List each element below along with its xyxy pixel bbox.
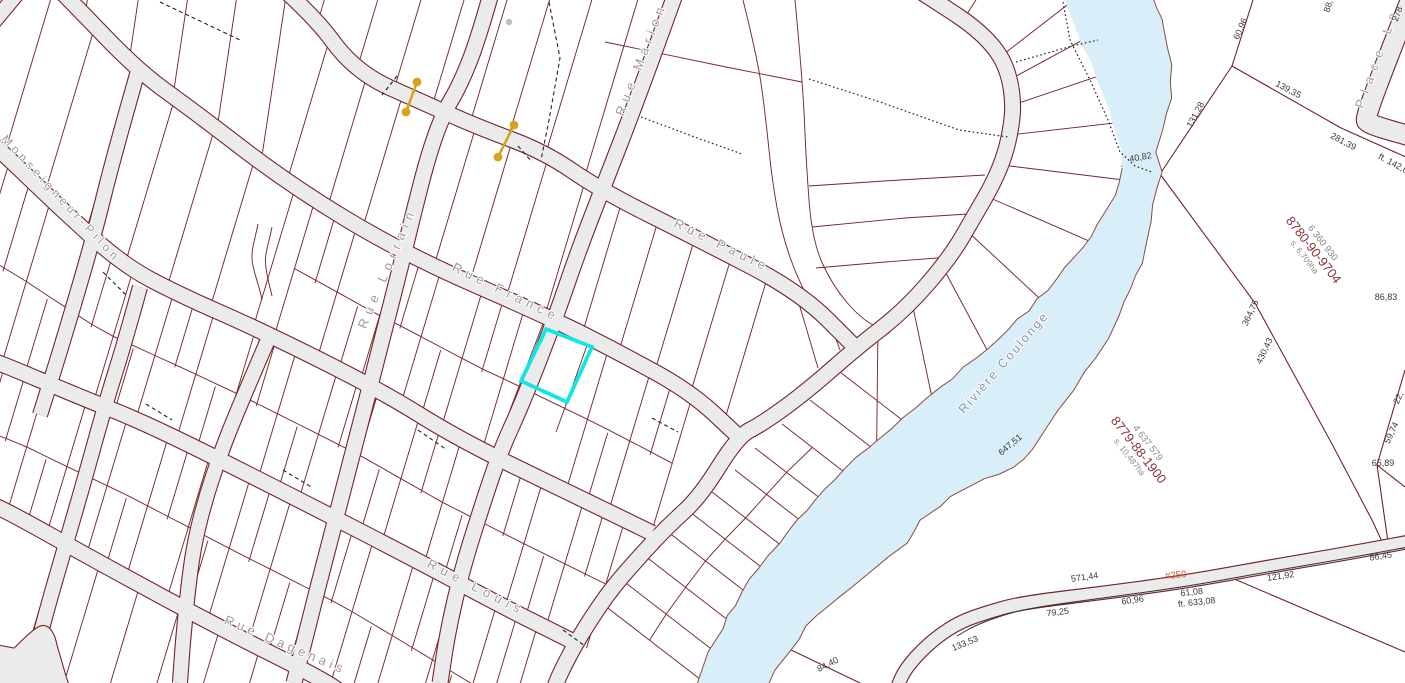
svg-text:65,89: 65,89 (1372, 458, 1395, 468)
svg-text:86,83: 86,83 (1375, 292, 1398, 302)
svg-text:#250: #250 (1165, 569, 1187, 582)
